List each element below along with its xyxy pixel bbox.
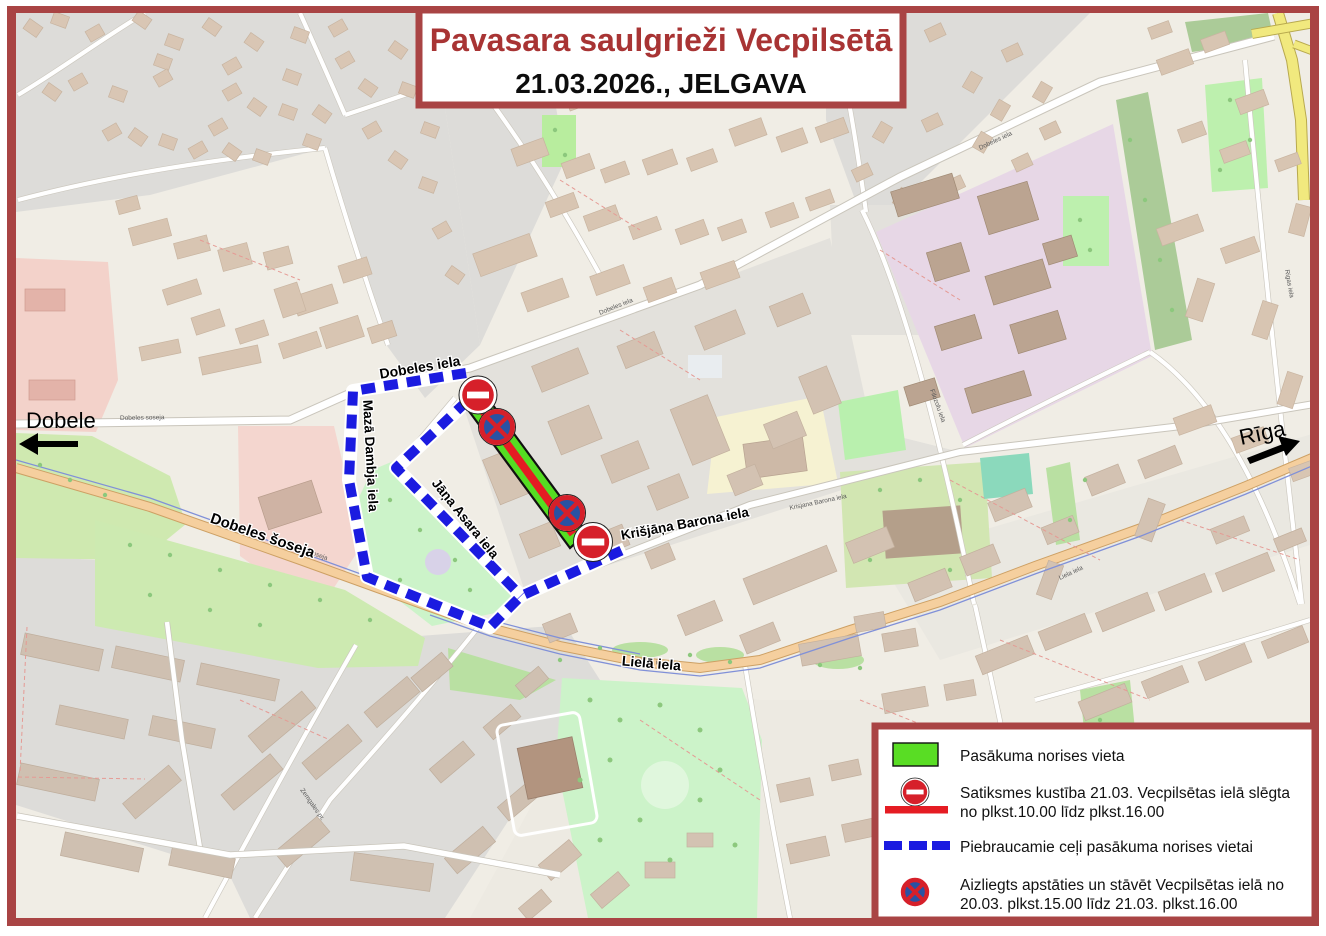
svg-text:Pavasara saulgrieži Vecpilsētā: Pavasara saulgrieži Vecpilsētā	[430, 22, 893, 58]
svg-text:Satiksmes kustība 21.03. Vecpi: Satiksmes kustība 21.03. Vecpilsētas iel…	[960, 785, 1290, 802]
svg-text:Dobeles soseja: Dobeles soseja	[120, 414, 165, 422]
svg-text:no plkst.10.00 līdz plkst.16.0: no plkst.10.00 līdz plkst.16.00	[960, 804, 1165, 821]
svg-text:21.03.2026., JELGAVA: 21.03.2026., JELGAVA	[515, 68, 807, 99]
svg-text:20.03. plkst.15.00 līdz 21.03.: 20.03. plkst.15.00 līdz 21.03. plkst.16.…	[960, 896, 1238, 913]
svg-text:Pasākuma norises vieta: Pasākuma norises vieta	[960, 748, 1125, 765]
svg-text:Dobele: Dobele	[26, 408, 96, 433]
svg-text:Aizliegts apstāties un stāvēt: Aizliegts apstāties un stāvēt Vecpilsēta…	[960, 877, 1284, 894]
svg-text:Piebraucamie ceļi pasākuma nor: Piebraucamie ceļi pasākuma norises vieta…	[960, 839, 1253, 856]
